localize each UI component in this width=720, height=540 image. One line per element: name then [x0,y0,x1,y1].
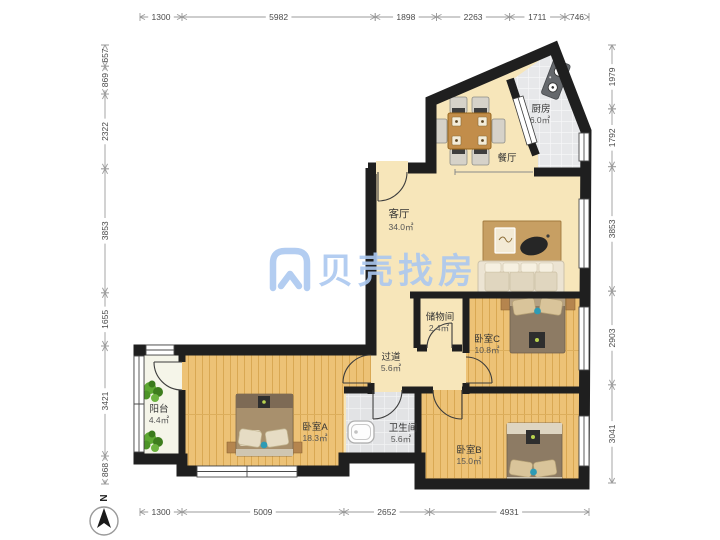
dimension-value: 1898 [396,12,415,22]
kitchen-label: 厨房 [531,103,550,115]
bed-b [507,423,562,485]
living-room-area: 34.0㎡ [388,222,414,232]
floor-plan-svg: 客厅 34.0㎡ 餐厅 厨房 6.0㎡ 储物间 2.4㎡ 卧室C 10.8㎡ 过… [0,0,720,540]
balcony-side-window [134,356,144,452]
living-room-window [579,199,589,268]
dimension-value: 1792 [607,128,617,147]
dimension-value: 5982 [269,12,288,22]
floor-plan-page: 客厅 34.0㎡ 餐厅 厨房 6.0㎡ 储物间 2.4㎡ 卧室C 10.8㎡ 过… [0,0,720,540]
dimension-value: 1300 [152,12,171,22]
kitchen-window [579,133,589,161]
bedroom-a-window [197,466,297,477]
bed-c [501,296,575,353]
balcony-top-window [146,345,174,355]
dimension-value: 2322 [100,122,110,141]
hallway-area: 5.6㎡ [381,363,402,373]
entrance-opening [376,161,408,174]
dimension-value: 1300 [152,507,171,517]
bedroom-a-label: 卧室A [302,421,328,433]
bathroom-area: 5.6㎡ [391,434,412,444]
dimension-value: 1655 [100,310,110,329]
dimension-value: 868 [100,463,110,477]
tv-cabinet [483,221,561,261]
storage-label: 储物间 [426,311,455,323]
bathtub [348,421,374,443]
hallway-label: 过道 [381,351,401,363]
bedroom-c-window [579,307,589,370]
dimension-value: 3853 [100,221,110,240]
storage-area: 2.4㎡ [429,323,450,333]
dimension-value: 869 [100,73,110,87]
compass-n-label: N [99,494,110,501]
bedroom-a-area: 18.3㎡ [302,433,328,443]
balcony-area: 4.4㎡ [149,415,170,425]
living-room-label: 客厅 [389,207,410,220]
dimension-value: 4931 [500,507,519,517]
dimension-value: 2652 [377,507,396,517]
dimension-value: 3421 [100,391,110,410]
bed-a [227,394,302,456]
dimension-value: 5009 [254,507,273,517]
dimension-value: 1711 [528,12,547,22]
bathroom-label: 卫生间 [389,422,418,434]
bedroom-b-label: 卧室B [456,444,481,456]
balcony-label: 阳台 [149,403,168,415]
sofa [478,261,564,294]
watermark: 贝壳找房 [273,251,478,291]
dimension-value: 746 [570,12,584,22]
bedroom-b-window [579,416,589,466]
dimension-value: 3041 [607,424,617,443]
bedroom-b-area: 15.0㎡ [456,456,482,466]
north-compass: N [90,494,118,535]
kitchen-area: 6.0㎡ [530,115,551,125]
dining-room-label: 餐厅 [497,152,517,164]
dimension-value: 3853 [607,219,617,238]
dimension-value: 1979 [607,67,617,86]
dimension-value: 2903 [607,328,617,347]
dimension-value: 657 [100,48,110,62]
dimension-value: 2263 [464,12,483,22]
bedroom-c-area: 10.8㎡ [474,345,500,355]
bedroom-c-label: 卧室C [474,333,500,345]
watermark-text: 贝壳找房 [318,252,478,291]
beike-shell-logo-icon [273,251,307,288]
